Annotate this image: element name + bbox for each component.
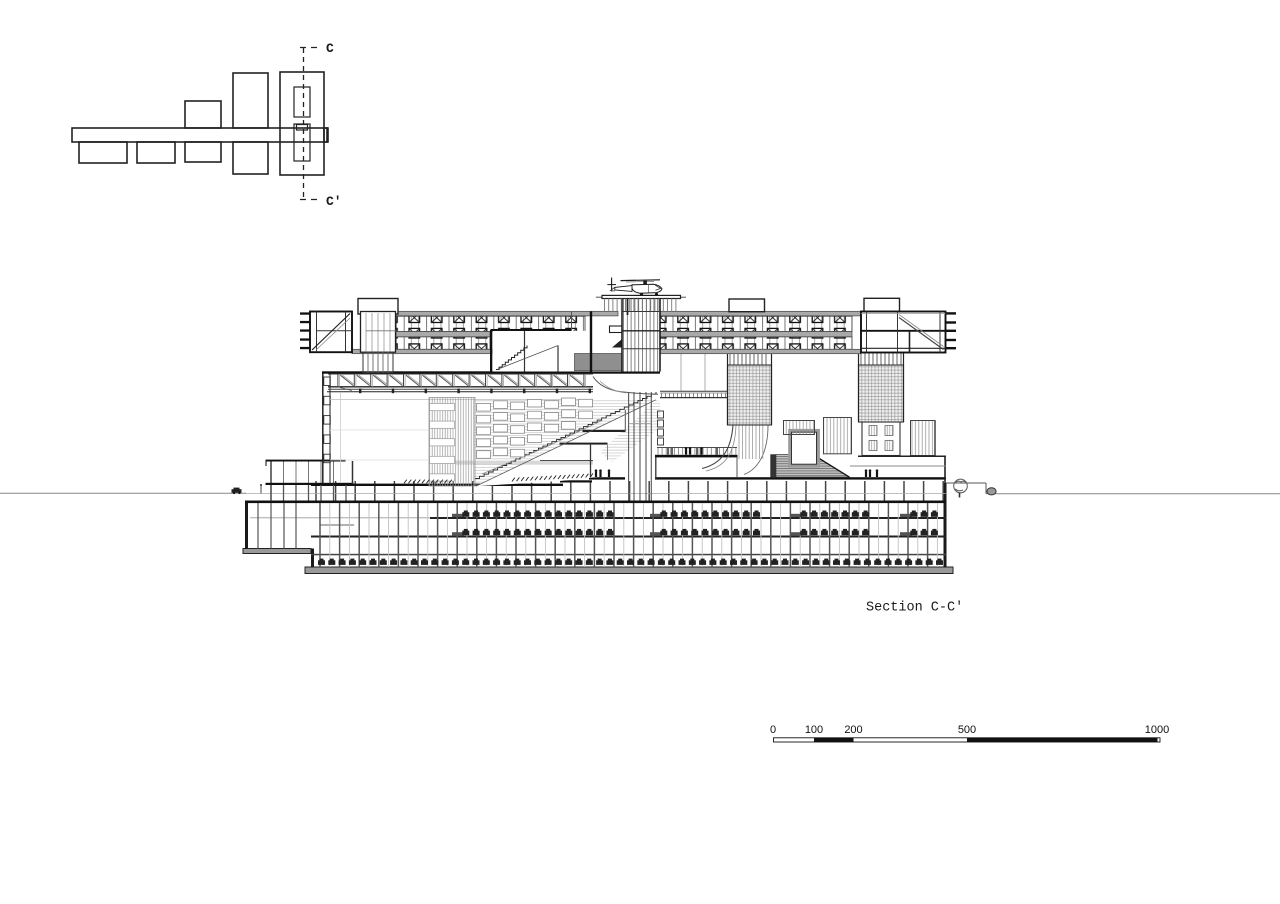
svg-text:0: 0 (770, 724, 776, 736)
svg-text:200: 200 (844, 724, 862, 736)
svg-text:1000: 1000 (1145, 724, 1169, 736)
svg-text:500: 500 (958, 724, 976, 736)
svg-text:Section C-C': Section C-C' (866, 601, 963, 616)
svg-text:100: 100 (805, 724, 823, 736)
svg-text:C': C' (326, 194, 342, 209)
svg-text:C: C (326, 41, 334, 56)
